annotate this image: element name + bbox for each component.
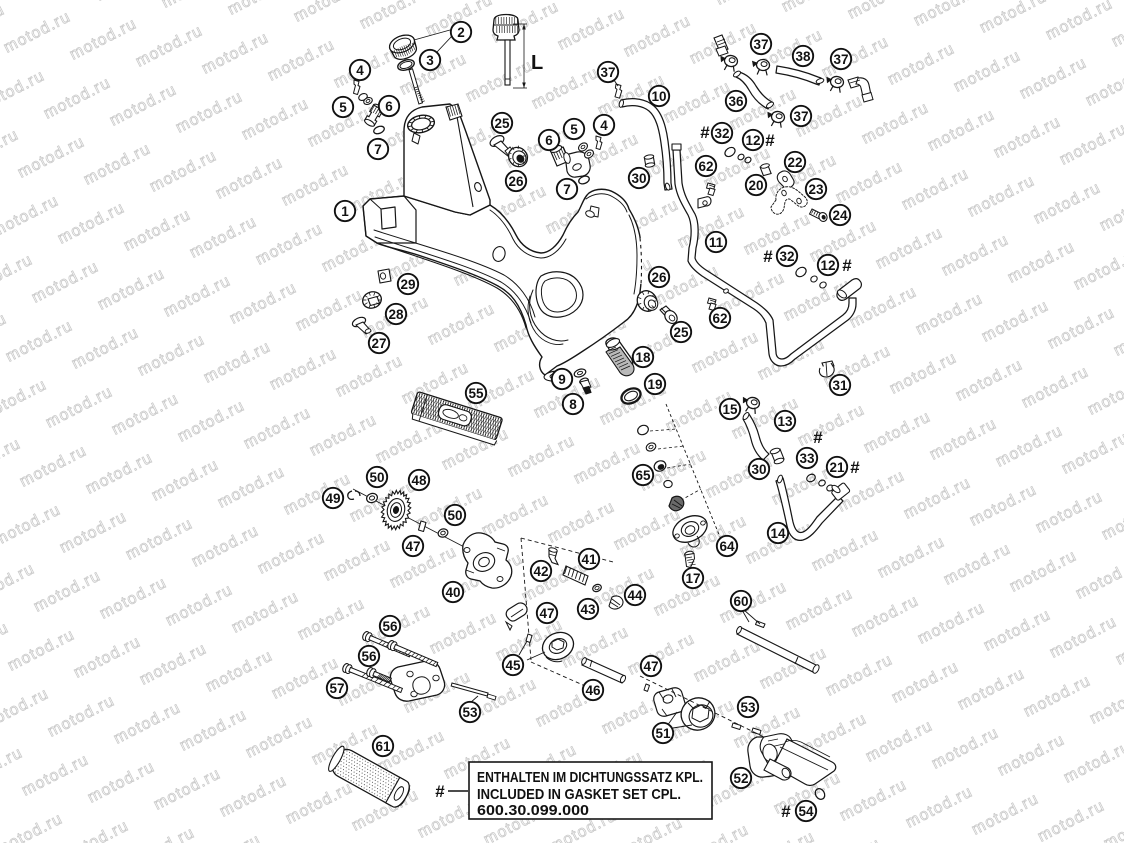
svg-text:64: 64 (719, 539, 735, 554)
svg-text:37: 37 (833, 52, 848, 67)
svg-text:13: 13 (777, 414, 793, 429)
svg-text:54: 54 (798, 804, 814, 819)
svg-text:5: 5 (570, 122, 578, 137)
svg-text:36: 36 (728, 94, 744, 109)
svg-text:2: 2 (457, 25, 465, 40)
svg-text:47: 47 (539, 606, 554, 621)
svg-text:18: 18 (635, 350, 651, 365)
svg-text:4: 4 (356, 63, 364, 78)
svg-text:7: 7 (563, 182, 571, 197)
svg-text:32: 32 (714, 126, 729, 141)
svg-text:30: 30 (751, 462, 766, 477)
svg-text:4: 4 (600, 118, 608, 133)
svg-text:47: 47 (643, 659, 658, 674)
svg-text:61: 61 (375, 739, 391, 754)
svg-text:43: 43 (580, 602, 596, 617)
svg-text:11: 11 (709, 235, 724, 250)
svg-text:#: # (842, 256, 852, 275)
svg-text:12: 12 (820, 258, 835, 273)
svg-text:14: 14 (770, 526, 786, 541)
svg-text:33: 33 (799, 451, 815, 466)
svg-text:8: 8 (569, 397, 577, 412)
svg-text:62: 62 (698, 159, 713, 174)
svg-text:60: 60 (733, 594, 748, 609)
svg-text:46: 46 (585, 683, 601, 698)
svg-text:56: 56 (361, 649, 377, 664)
svg-text:#: # (435, 782, 445, 801)
svg-text:28: 28 (388, 307, 404, 322)
svg-text:51: 51 (655, 726, 671, 741)
svg-text:41: 41 (581, 552, 597, 567)
svg-text:17: 17 (685, 571, 700, 586)
svg-text:10: 10 (651, 89, 666, 104)
svg-text:6: 6 (545, 133, 553, 148)
svg-text:32: 32 (779, 249, 794, 264)
svg-text:20: 20 (748, 178, 763, 193)
svg-text:37: 37 (753, 37, 768, 52)
svg-text:55: 55 (468, 386, 484, 401)
svg-text:25: 25 (673, 325, 689, 340)
svg-text:56: 56 (382, 619, 398, 634)
svg-text:9: 9 (558, 372, 566, 387)
svg-text:22: 22 (787, 155, 802, 170)
svg-text:47: 47 (405, 539, 420, 554)
svg-text:53: 53 (462, 705, 478, 720)
svg-text:7: 7 (374, 142, 382, 157)
svg-text:23: 23 (808, 182, 824, 197)
svg-text:6: 6 (385, 99, 393, 114)
svg-text:#: # (781, 802, 791, 821)
svg-text:62: 62 (712, 311, 727, 326)
svg-text:53: 53 (740, 700, 756, 715)
svg-text:ENTHALTEN IM DICHTUNGSSATZ KPL: ENTHALTEN IM DICHTUNGSSATZ KPL. (477, 769, 703, 786)
svg-text:#: # (765, 131, 775, 150)
svg-text:42: 42 (533, 564, 548, 579)
svg-text:#: # (813, 428, 823, 447)
svg-text:52: 52 (733, 771, 748, 786)
svg-text:INCLUDED IN GASKET SET CPL.: INCLUDED IN GASKET SET CPL. (477, 786, 681, 803)
svg-text:L: L (531, 52, 543, 74)
svg-text:26: 26 (508, 174, 524, 189)
svg-text:49: 49 (325, 491, 340, 506)
svg-text:31: 31 (832, 378, 848, 393)
svg-text:50: 50 (447, 508, 462, 523)
svg-text:15: 15 (722, 402, 738, 417)
svg-text:1: 1 (341, 204, 349, 219)
svg-text:29: 29 (400, 277, 415, 292)
svg-text:37: 37 (793, 109, 808, 124)
svg-text:44: 44 (627, 588, 643, 603)
svg-text:12: 12 (745, 133, 760, 148)
svg-text:50: 50 (369, 470, 384, 485)
svg-text:48: 48 (411, 473, 427, 488)
svg-text:26: 26 (651, 270, 667, 285)
svg-text:#: # (700, 123, 710, 142)
svg-text:27: 27 (371, 336, 386, 351)
svg-text:3: 3 (426, 53, 434, 68)
svg-text:57: 57 (329, 681, 344, 696)
svg-text:21: 21 (829, 460, 845, 475)
svg-text:19: 19 (647, 377, 662, 392)
svg-text:#: # (763, 247, 773, 266)
svg-text:37: 37 (600, 65, 615, 80)
svg-text:40: 40 (445, 585, 460, 600)
svg-text:25: 25 (494, 116, 510, 131)
svg-text:5: 5 (339, 100, 347, 115)
svg-text:30: 30 (631, 171, 646, 186)
svg-text:24: 24 (832, 208, 848, 223)
svg-text:38: 38 (795, 49, 811, 64)
svg-text:#: # (850, 458, 860, 477)
svg-text:45: 45 (505, 658, 521, 673)
svg-text:65: 65 (635, 468, 651, 483)
svg-text:600.30.099.000: 600.30.099.000 (477, 802, 589, 819)
